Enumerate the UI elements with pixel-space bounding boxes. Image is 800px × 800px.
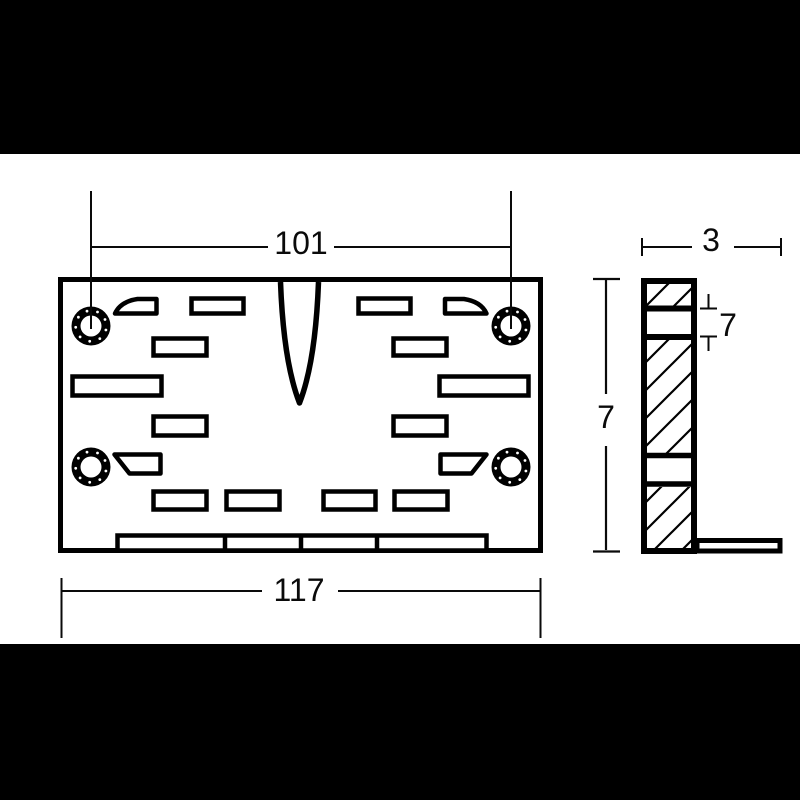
hatched-section-middle bbox=[647, 340, 691, 453]
letterbox-bottom bbox=[0, 644, 800, 800]
vent-slot-row5-a bbox=[154, 492, 207, 510]
mounting-hole-bottom-left bbox=[72, 448, 111, 487]
dimension-slot-height bbox=[700, 294, 717, 351]
vent-slot-row4-left bbox=[154, 417, 207, 436]
vent-slot-row2-right bbox=[394, 339, 447, 356]
vent-slot-row3-right bbox=[440, 377, 529, 396]
hatched-section-top bbox=[647, 284, 691, 306]
plate-outline bbox=[61, 280, 541, 551]
side-view-l-profile bbox=[641, 281, 780, 551]
base-flange bbox=[697, 541, 780, 552]
vent-slot-row5-d bbox=[395, 492, 448, 510]
vent-slot-row5-b bbox=[227, 492, 280, 510]
dimension-label-117: 117 bbox=[273, 572, 324, 608]
vent-slot-row2-left bbox=[154, 339, 207, 356]
front-view-plate bbox=[61, 280, 541, 551]
vent-slot-row4-right bbox=[394, 417, 447, 436]
mounting-hole-bottom-right bbox=[492, 448, 531, 487]
technical-drawing: 101 117 bbox=[0, 154, 800, 644]
vent-slot-row5-c bbox=[324, 492, 376, 510]
dimension-label-7-height: 7 bbox=[597, 399, 615, 435]
dimension-label-3: 3 bbox=[702, 222, 720, 258]
vent-slot-row3-left bbox=[73, 377, 162, 396]
letterbox-top bbox=[0, 0, 800, 154]
vent-slot-row1-right-inner bbox=[359, 299, 411, 314]
hatched-section-bottom bbox=[647, 487, 691, 548]
vent-slot-row1-left-inner bbox=[192, 299, 244, 314]
dimension-label-7-slot: 7 bbox=[719, 307, 737, 343]
dimension-label-101: 101 bbox=[274, 225, 327, 261]
screenshot-canvas: 101 117 bbox=[0, 0, 800, 800]
drawing-area: 101 117 bbox=[0, 154, 800, 644]
